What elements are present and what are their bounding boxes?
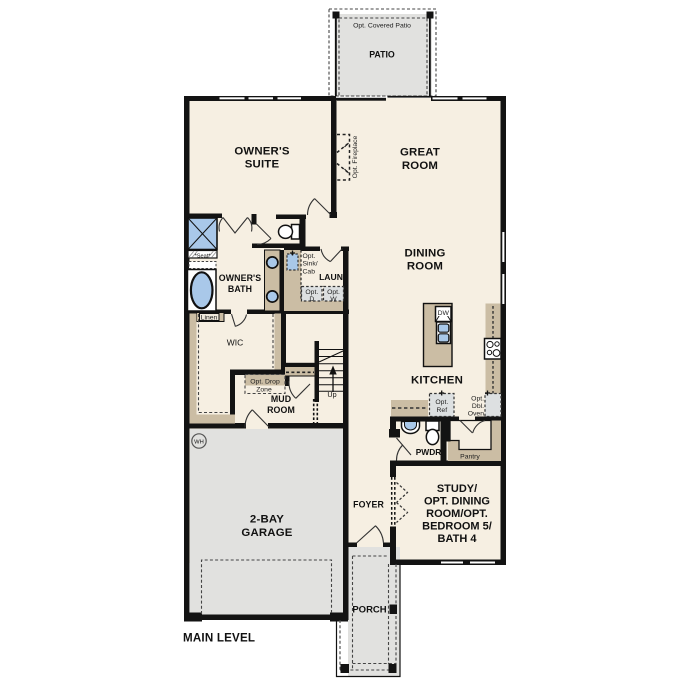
svg-text:PATIO: PATIO [369,50,395,60]
svg-text:DINING: DINING [404,247,445,259]
svg-text:FOYER: FOYER [353,500,384,510]
svg-text:Opt. Fireplace: Opt. Fireplace [352,135,359,178]
svg-text:Opt. Drop: Opt. Drop [250,379,280,386]
svg-text:Ref: Ref [437,407,448,414]
svg-text:WH: WH [194,440,204,446]
svg-text:MAIN LEVEL: MAIN LEVEL [183,632,255,645]
svg-text:GREAT: GREAT [400,147,440,159]
svg-text:LAUN: LAUN [319,272,343,282]
svg-text:ROOM: ROOM [402,160,438,172]
svg-text:SUITE: SUITE [245,159,280,171]
svg-text:Up: Up [327,390,336,399]
svg-text:ROOM/OPT.: ROOM/OPT. [426,508,488,520]
svg-text:2-BAY: 2-BAY [250,514,284,526]
svg-text:Dbl.: Dbl. [472,403,484,410]
svg-text:ROOM: ROOM [407,261,443,273]
svg-text:OPT. DINING: OPT. DINING [424,496,490,508]
svg-text:KITCHEN: KITCHEN [411,375,463,387]
svg-text:WIC: WIC [227,338,244,348]
svg-text:BEDROOM 5/: BEDROOM 5/ [422,521,492,533]
svg-text:Opt.: Opt. [305,289,318,296]
svg-text:Linen: Linen [201,315,218,322]
svg-text:Opt.: Opt. [471,396,484,403]
svg-text:ROOM: ROOM [267,405,295,415]
svg-text:BATH 4: BATH 4 [438,533,478,545]
svg-text:Opt.: Opt. [327,289,340,296]
svg-text:PORCH: PORCH [352,605,386,616]
svg-text:DW: DW [438,310,450,317]
svg-text:Sink/: Sink/ [303,261,318,268]
svg-text:STUDY/: STUDY/ [437,483,477,495]
svg-text:*Seat*: *Seat* [195,254,212,260]
svg-text:GARAGE: GARAGE [241,527,292,539]
svg-text:D: D [309,296,314,303]
svg-text:Opt.: Opt. [435,399,448,406]
svg-text:Opt.: Opt. [303,253,316,260]
svg-text:Zone: Zone [256,387,272,394]
svg-text:Oven: Oven [468,410,484,417]
svg-text:W: W [330,296,337,303]
svg-text:OWNER'S: OWNER'S [219,273,261,283]
svg-text:Cab: Cab [303,269,316,276]
svg-text:OWNER'S: OWNER'S [234,146,290,158]
svg-text:Pantry: Pantry [460,454,480,461]
svg-text:MUD: MUD [271,394,291,404]
svg-text:PWDR: PWDR [416,447,442,457]
svg-text:Opt. Covered Patio: Opt. Covered Patio [353,23,411,30]
svg-text:BATH: BATH [228,284,252,294]
